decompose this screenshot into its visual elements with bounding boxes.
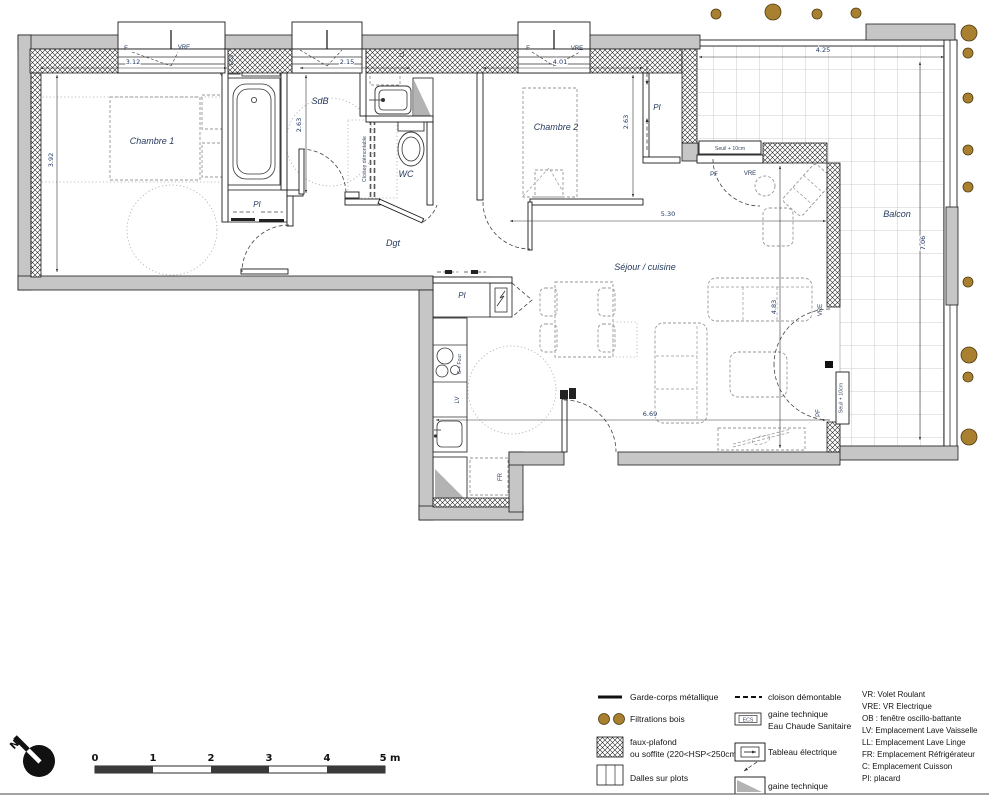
balcony-threshold bbox=[697, 155, 763, 163]
seuil-label: Seuil + 10cm bbox=[715, 146, 745, 152]
room-label-chambre2: Chambre 2 bbox=[534, 122, 579, 132]
scale-segment bbox=[95, 766, 153, 773]
abbr-line: LL: Emplacement Lave Linge bbox=[862, 738, 966, 747]
ch1-side-table-bottom bbox=[202, 143, 223, 177]
chair bbox=[540, 288, 557, 316]
balcony-door-swing bbox=[713, 159, 760, 206]
kitchen-turning-circle bbox=[468, 346, 556, 434]
wood-dot bbox=[851, 8, 861, 18]
tv-screen bbox=[733, 432, 791, 447]
panel-leader bbox=[744, 762, 757, 771]
ecs-label: ECS bbox=[229, 54, 235, 65]
abbr-line: VRE: VR Electrique bbox=[862, 702, 932, 711]
room-label-wc: WC bbox=[399, 169, 414, 179]
abbr-line: VR: Volet Roulant bbox=[862, 690, 926, 699]
legend-label: cloison démontable bbox=[768, 692, 842, 702]
sink-tap-dot bbox=[434, 434, 437, 437]
south-west-wall bbox=[18, 276, 433, 290]
wood-dot bbox=[961, 25, 977, 41]
abbr-line: FR: Emplacement Réfrigérateur bbox=[862, 750, 975, 759]
seuil-box-top: Seuil + 10cm bbox=[699, 141, 761, 154]
tv-stand bbox=[751, 434, 770, 446]
partition bbox=[345, 199, 380, 205]
legend-label: ou soffite (220<HSP<250cm) bbox=[630, 749, 740, 759]
scale-tick: 2 bbox=[208, 753, 215, 764]
ch1-door-swing bbox=[242, 225, 289, 272]
room-label-sejour: Séjour / cuisine bbox=[614, 262, 676, 272]
desk-chair bbox=[755, 176, 775, 196]
kitchen-soffit-band bbox=[433, 498, 509, 507]
sliding-handle bbox=[471, 270, 478, 274]
partition bbox=[643, 157, 680, 163]
door-tag-pf: PF bbox=[816, 409, 822, 417]
entrance-door-leaf bbox=[562, 399, 567, 452]
seuil-box-right: Seuil + 10cm bbox=[836, 372, 849, 424]
wc-door-swing bbox=[423, 205, 437, 222]
balcony-south-wall bbox=[830, 446, 958, 460]
bathtub bbox=[228, 78, 280, 185]
floor-plan-drawing: Chambre 1 SdB WC Chambre 2 Dgt Séjour / … bbox=[0, 0, 989, 800]
legend: Garde-corps métallique Filtrations bois … bbox=[597, 690, 978, 794]
scale-tick-end: 5 m bbox=[380, 753, 401, 764]
sejour-north-wall bbox=[763, 143, 827, 163]
abbr-line: OB : fenêtre oscillo-battante bbox=[862, 714, 962, 723]
scale-tick: 1 bbox=[150, 753, 157, 764]
door-closer bbox=[560, 390, 568, 399]
coffee-table bbox=[730, 352, 787, 397]
wood-dot bbox=[963, 182, 973, 192]
window-tag-vre: VRE bbox=[571, 46, 583, 52]
floor-plan-sheet: Chambre 1 SdB WC Chambre 2 Dgt Séjour / … bbox=[0, 0, 989, 800]
partition bbox=[366, 116, 433, 122]
partition bbox=[643, 73, 649, 157]
partition bbox=[287, 196, 293, 226]
wood-dot bbox=[961, 347, 977, 363]
west-wall bbox=[18, 35, 31, 290]
wood-dot bbox=[963, 277, 973, 287]
wood-dot bbox=[963, 93, 973, 103]
door-closer bbox=[569, 388, 576, 399]
abbr-line: PI: placard bbox=[862, 774, 900, 783]
sofa-vertical bbox=[655, 323, 707, 423]
wood-dot bbox=[961, 429, 977, 445]
scale-tick: 0 bbox=[92, 753, 99, 764]
partition bbox=[433, 277, 512, 283]
chair bbox=[540, 324, 557, 352]
room-label-sdb: SdB bbox=[311, 96, 328, 106]
dining-table bbox=[555, 282, 613, 357]
fr-label: FR bbox=[498, 472, 504, 481]
slab-swatch bbox=[597, 765, 623, 785]
scale-tick: 3 bbox=[266, 753, 273, 764]
dim-balcon-length: 7.06 bbox=[919, 236, 927, 250]
room-label-balcon: Balcon bbox=[883, 209, 911, 219]
window-tag-f: F bbox=[124, 46, 128, 52]
partition bbox=[427, 122, 433, 205]
legend-label: gaine technique bbox=[768, 781, 828, 791]
sejour-south-wall-left bbox=[509, 452, 564, 465]
ch2-bed-flap bbox=[523, 168, 562, 196]
window-tag-vre: VRE bbox=[178, 45, 190, 51]
entrance-door-swing bbox=[564, 400, 616, 452]
wood-dot-swatch bbox=[614, 714, 625, 725]
west-soffit-band bbox=[31, 73, 41, 277]
wood-dot bbox=[963, 48, 973, 58]
dim-ch2-depth: 2.63 bbox=[622, 115, 630, 129]
wood-dot bbox=[963, 372, 973, 382]
dim-ch1-depth: 3.92 bbox=[47, 153, 55, 167]
wc-door-leaf bbox=[378, 199, 424, 223]
balcony-right-pier bbox=[946, 207, 958, 305]
lounge-chair bbox=[782, 163, 835, 218]
legend-label: Filtrations bois bbox=[630, 714, 685, 724]
ch2-bed bbox=[523, 88, 577, 197]
dim-sejour-depth: 4.83 bbox=[770, 300, 778, 314]
kitchen-south-wall bbox=[419, 506, 523, 520]
chair bbox=[598, 288, 615, 316]
chair bbox=[598, 324, 615, 352]
wood-dot bbox=[812, 9, 822, 19]
cloison-label: Cloison démontable bbox=[362, 136, 368, 182]
door-tag-vre: VRE bbox=[818, 304, 824, 316]
evolutive-space-zone bbox=[348, 120, 397, 198]
sejour-south-wall-right bbox=[618, 452, 840, 465]
room-label-dgt: Dgt bbox=[386, 238, 401, 248]
scale-segment bbox=[327, 766, 385, 773]
room-label-chambre1: Chambre 1 bbox=[130, 136, 175, 146]
abbr-line: C: Emplacement Cuisson bbox=[862, 762, 952, 771]
balcony-soffit-block bbox=[866, 24, 955, 40]
closet-label: PI bbox=[458, 291, 466, 300]
legend-label: Garde-corps métallique bbox=[630, 692, 719, 702]
panel-flap bbox=[512, 283, 532, 317]
ch1-turning-circle bbox=[127, 185, 217, 275]
partition bbox=[281, 73, 287, 190]
sdb-door-leaf bbox=[299, 149, 304, 194]
french-door-swing-upper bbox=[774, 309, 830, 365]
legend-label: Tableau électrique bbox=[768, 747, 837, 757]
dim-ch2-width: 4.01 bbox=[553, 58, 567, 66]
legend-label: Dalles sur plots bbox=[630, 773, 688, 783]
soffit-swatch bbox=[597, 737, 623, 757]
lv-label: LV bbox=[455, 397, 461, 404]
ll-label: LL bbox=[400, 50, 406, 57]
dim-sejour-width: 5.30 bbox=[661, 210, 675, 218]
scale-tick: 4 bbox=[324, 753, 331, 764]
partition bbox=[222, 49, 228, 222]
tv-screen bbox=[733, 429, 791, 444]
ch2-bed-corner bbox=[535, 170, 563, 197]
closet-label: PI bbox=[653, 103, 661, 112]
sejour-east-wall-lower bbox=[827, 422, 840, 452]
nook-corner bbox=[682, 143, 698, 161]
abbr-line: LV: Emplacement Lave Vaisselle bbox=[862, 726, 978, 735]
door-tag-vre: VRE bbox=[744, 171, 756, 177]
desk bbox=[763, 208, 793, 246]
cooking-label: C + Four bbox=[457, 354, 463, 375]
ch1-side-table-top bbox=[202, 95, 223, 129]
closet-label: PI bbox=[253, 200, 261, 209]
kitchen-west-wall bbox=[419, 290, 433, 520]
closet-sliding-panel bbox=[231, 218, 255, 221]
sofa-horizontal bbox=[708, 278, 812, 321]
french-door-latch bbox=[825, 361, 833, 368]
basin-tap-dot bbox=[381, 98, 385, 102]
sejour-east-wall-upper bbox=[827, 163, 840, 307]
ch2-door-leaf bbox=[528, 202, 532, 250]
legend-label: Eau Chaude Sanitaire bbox=[768, 721, 851, 731]
scale-segment bbox=[211, 766, 269, 773]
closet-sliding-panel bbox=[259, 219, 284, 222]
door-tag-pf: PF bbox=[710, 172, 718, 178]
wood-dot-swatch bbox=[599, 714, 610, 725]
wood-dot bbox=[765, 4, 781, 20]
partition bbox=[530, 199, 643, 205]
partition bbox=[477, 73, 483, 200]
ch2-door-swing bbox=[483, 202, 530, 249]
dining-table-extension bbox=[613, 322, 637, 357]
sliding-handle bbox=[445, 270, 452, 274]
legend-label: faux-plafond bbox=[630, 737, 677, 747]
dim-sejour-length: 6.69 bbox=[643, 410, 657, 418]
sdb-door-swing bbox=[301, 149, 346, 194]
dim-balcon-width: 4.25 bbox=[816, 46, 830, 54]
ecs-swatch-text: ECS bbox=[743, 718, 754, 724]
scale-bar: 0 1 2 3 4 5 m bbox=[92, 753, 401, 773]
balcony-tiled-floor bbox=[697, 46, 944, 446]
dim-sdb-width: 2.15 bbox=[340, 58, 354, 66]
partition bbox=[345, 192, 359, 198]
nook-wall bbox=[682, 49, 697, 143]
dim-sdb-depth: 2.63 bbox=[295, 118, 303, 132]
wood-dot bbox=[711, 9, 721, 19]
ch1-door-leaf bbox=[241, 269, 288, 274]
dim-ch1-width: 3.12 bbox=[126, 58, 140, 66]
tv-sideboard bbox=[718, 428, 805, 450]
north-arrow: N bbox=[8, 737, 55, 777]
window-tag-f: F bbox=[526, 46, 530, 52]
legend-label: gaine technique bbox=[768, 709, 828, 719]
seuil-label: Seuil + 10cm bbox=[839, 383, 845, 413]
wood-dot bbox=[963, 145, 973, 155]
